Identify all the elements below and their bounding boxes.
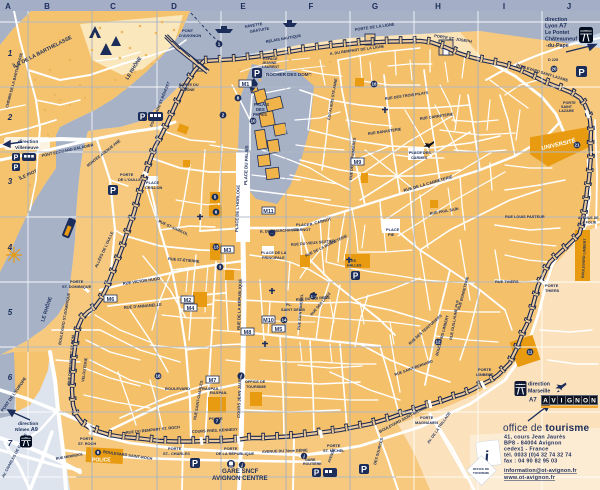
svg-text:18: 18: [155, 374, 161, 379]
svg-text:13: 13: [213, 245, 219, 250]
svg-text:ST.- CHARLES: ST.- CHARLES: [163, 451, 190, 456]
svg-text:F: F: [309, 2, 314, 11]
svg-text:I: I: [561, 398, 563, 405]
svg-text:PLACE DES: PLACE DES: [409, 151, 431, 155]
svg-text:direction: direction: [528, 382, 550, 388]
svg-text:CARMES: CARMES: [411, 156, 428, 160]
svg-text:I: I: [503, 2, 505, 11]
svg-text:POLICE: POLICE: [92, 458, 111, 464]
svg-text:www.ot-avignon.fr: www.ot-avignon.fr: [503, 475, 556, 481]
svg-text:RUE LOUIS PASTEUR: RUE LOUIS PASTEUR: [505, 215, 545, 219]
svg-text:OFFICE DE: OFFICE DE: [245, 380, 266, 384]
svg-text:RUE THIERS: RUE THIERS: [495, 279, 519, 284]
svg-text:2: 2: [7, 113, 13, 122]
svg-text:ST. DOMINIQUE: ST. DOMINIQUE: [62, 284, 92, 289]
svg-text:12: 12: [435, 340, 441, 345]
svg-text:3: 3: [8, 177, 13, 186]
svg-text:M7: M7: [209, 378, 217, 384]
svg-text:G: G: [372, 2, 378, 11]
svg-text:D: D: [171, 2, 177, 11]
svg-text:A: A: [5, 2, 11, 11]
svg-text:J: J: [567, 2, 571, 11]
svg-text:DE L'OULLE: DE L'OULLE: [118, 177, 141, 182]
svg-text:THIERS: THIERS: [545, 288, 560, 293]
svg-text:Lyon A7: Lyon A7: [545, 23, 567, 30]
svg-text:H: H: [435, 2, 441, 11]
svg-text:N: N: [575, 398, 580, 405]
svg-text:fax : 04 90 82 95 03: fax : 04 90 82 95 03: [504, 459, 558, 465]
svg-text:B: B: [44, 2, 50, 11]
svg-text:D'AVIGNON: D'AVIGNON: [179, 33, 201, 38]
svg-text:TOURISME: TOURISME: [473, 471, 489, 475]
svg-text:M9: M9: [354, 160, 362, 166]
svg-text:Marseille: Marseille: [528, 389, 550, 395]
svg-text:RHÔNE: RHÔNE: [181, 87, 195, 92]
svg-text:P: P: [254, 69, 260, 79]
svg-text:RASPAIL: RASPAIL: [210, 390, 228, 395]
svg-text:PORTE DU: PORTE DU: [179, 83, 199, 87]
svg-text:Nîmes A9: Nîmes A9: [15, 427, 38, 433]
svg-text:LIMBERT: LIMBERT: [476, 372, 494, 377]
svg-text:N: N: [591, 398, 596, 405]
svg-text:14: 14: [281, 318, 287, 323]
svg-text:TOURISME: TOURISME: [246, 385, 266, 389]
svg-text:D 225: D 225: [548, 58, 558, 62]
svg-text:LAZARE: LAZARE: [559, 109, 574, 113]
svg-text:P: P: [192, 459, 198, 469]
svg-text:M10: M10: [263, 318, 274, 324]
svg-text:Châteauneuf: Châteauneuf: [545, 37, 577, 43]
svg-text:1: 1: [8, 49, 13, 58]
svg-text:C: C: [110, 2, 116, 11]
svg-text:M4: M4: [187, 306, 196, 312]
svg-text:M8: M8: [244, 330, 252, 336]
svg-text:A: A: [543, 398, 548, 405]
svg-text:M11: M11: [263, 209, 273, 215]
svg-text:PL.: PL.: [286, 303, 292, 307]
svg-text:ROCHER DES DOMS: ROCHER DES DOMS: [266, 72, 312, 77]
svg-text:V: V: [551, 398, 556, 405]
svg-text:MAGNANEN: MAGNANEN: [415, 420, 438, 425]
svg-text:ROUTIÈRE: ROUTIÈRE: [303, 461, 322, 466]
svg-text:P: P: [353, 272, 359, 281]
svg-text:DE LA RÉPUBLIQUE: DE LA RÉPUBLIQUE: [216, 451, 255, 456]
svg-text:16: 16: [371, 82, 377, 87]
svg-text:4: 4: [7, 243, 13, 252]
svg-text:6: 6: [8, 373, 13, 382]
svg-text:ST. ROCH: ST. ROCH: [78, 441, 96, 446]
svg-text:office de tourisme: office de tourisme: [503, 423, 589, 434]
svg-text:5: 5: [8, 308, 13, 317]
svg-text:information@ot-avignon.fr: information@ot-avignon.fr: [504, 468, 578, 474]
svg-text:HALLES: HALLES: [347, 264, 362, 268]
svg-text:10: 10: [250, 119, 256, 124]
svg-text:-du-Pape: -du-Pape: [546, 43, 569, 49]
svg-text:CARNOT: CARNOT: [294, 227, 311, 232]
svg-text:AVENUE DE: AVENUE DE: [578, 216, 599, 220]
svg-text:M5: M5: [275, 327, 283, 333]
svg-text:Le Pontet: Le Pontet: [545, 30, 569, 36]
svg-text:M2: M2: [184, 298, 192, 304]
svg-text:PIE: PIE: [388, 232, 395, 237]
svg-text:M1: M1: [242, 82, 250, 88]
svg-text:P: P: [110, 186, 116, 196]
svg-text:11: 11: [528, 350, 533, 355]
svg-text:PLACE DE LA: PLACE DE LA: [261, 251, 287, 255]
svg-text:P: P: [14, 155, 19, 162]
svg-text:E: E: [240, 2, 246, 11]
svg-text:LA FOLIE: LA FOLIE: [580, 221, 597, 225]
svg-text:20: 20: [551, 67, 557, 72]
svg-text:BOULEVARD: BOULEVARD: [165, 386, 190, 391]
svg-text:CRILLON: CRILLON: [145, 185, 162, 190]
svg-text:M3: M3: [224, 248, 232, 254]
svg-text:O: O: [583, 398, 588, 405]
svg-text:PRINCIPALE: PRINCIPALE: [262, 256, 285, 260]
svg-text:M6: M6: [107, 297, 115, 303]
svg-text:P: P: [140, 113, 146, 122]
svg-text:P: P: [14, 165, 19, 172]
svg-text:A7: A7: [529, 398, 537, 404]
svg-text:7: 7: [8, 439, 13, 448]
svg-text:G: G: [567, 398, 572, 405]
svg-text:Villeneuve: Villeneuve: [15, 145, 39, 151]
svg-text:P: P: [314, 469, 320, 478]
svg-text:LAURENT: LAURENT: [262, 65, 280, 69]
svg-text:P: P: [361, 465, 367, 475]
svg-text:PAPES: PAPES: [253, 112, 267, 117]
svg-text:P: P: [578, 68, 585, 79]
svg-text:AVIGNON CENTRE: AVIGNON CENTRE: [212, 475, 268, 482]
